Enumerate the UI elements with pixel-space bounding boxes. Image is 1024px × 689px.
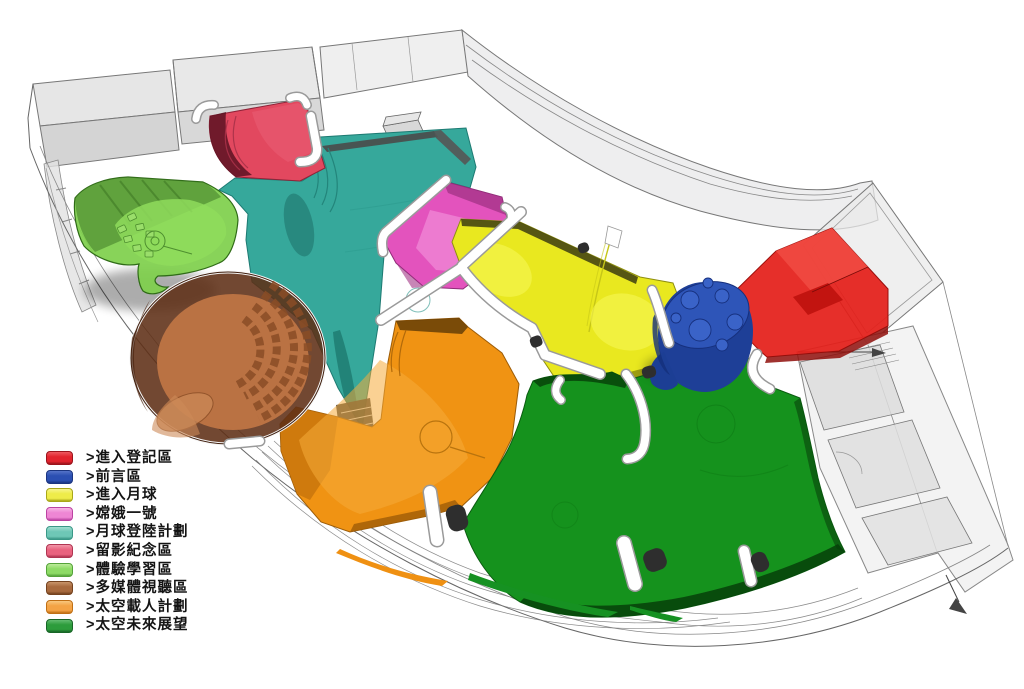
legend-label: >進入月球 [86,488,157,503]
legend-label: >留影紀念區 [86,544,173,559]
legend-swatch-lunar-landing [46,526,73,540]
legend-swatch-space-future [46,619,73,633]
top-curved-wall [462,30,878,230]
legend-item: >太空未來展望 [46,616,188,635]
zone-multimedia-av [131,272,325,444]
zone-space-future-outlook [463,357,845,622]
legend-item: >前言區 [46,468,188,487]
legend-item: >體驗學習區 [46,561,188,580]
legend-label: >太空載人計劃 [86,600,188,615]
legend-item: >太空載人計劃 [46,598,188,617]
legend-label: >前言區 [86,470,142,485]
legend-label: >月球登陸計劃 [86,525,188,540]
legend-item: >月球登陸計劃 [46,523,188,542]
legend-item: >進入登記區 [46,449,188,468]
legend-swatch-enter-the-moon [46,488,73,502]
legend-item: >留影紀念區 [46,542,188,561]
legend-label: >太空未來展望 [86,618,188,633]
legend-swatch-foreword [46,470,73,484]
floor-plan-diagram: >進入登記區 >前言區 >進入月球 >嫦娥一號 >月球登陸計劃 >留影紀念區 >… [0,0,1024,689]
legend-label: >多媒體視聽區 [86,581,188,596]
legend-swatch-experiential-learning [46,563,73,577]
legend-item: >多媒體視聽區 [46,579,188,598]
legend: >進入登記區 >前言區 >進入月球 >嫦娥一號 >月球登陸計劃 >留影紀念區 >… [46,449,188,635]
legend-label: >嫦娥一號 [86,507,157,522]
legend-swatch-multimedia-av [46,581,73,595]
legend-swatch-photo-souvenir [46,544,73,558]
legend-swatch-manned-space [46,600,73,614]
legend-swatch-chang-e-1 [46,507,73,521]
legend-item: >進入月球 [46,486,188,505]
legend-label: >體驗學習區 [86,563,173,578]
legend-label: >進入登記區 [86,451,173,466]
legend-swatch-entry-registration [46,451,73,465]
legend-item: >嫦娥一號 [46,505,188,524]
